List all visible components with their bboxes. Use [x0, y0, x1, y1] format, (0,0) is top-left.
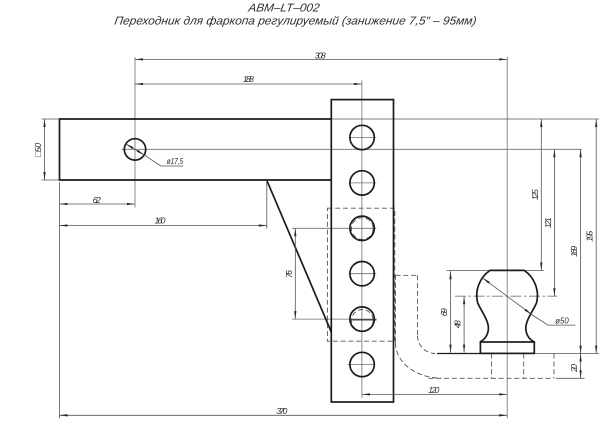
svg-text:48: 48 [453, 320, 463, 328]
svg-text:ø50: ø50 [555, 316, 569, 325]
svg-text:120: 120 [428, 385, 439, 395]
svg-text:125: 125 [530, 189, 540, 200]
svg-text:Переходник для фаркопа регулир: Переходник для фаркопа регулируемый (зан… [114, 15, 478, 27]
svg-text:АВМ–LT–002: АВМ–LT–002 [247, 2, 321, 14]
svg-text:370: 370 [276, 406, 287, 416]
svg-text:195: 195 [585, 231, 595, 242]
svg-text:□50: □50 [33, 143, 43, 157]
svg-text:308: 308 [315, 51, 326, 61]
svg-text:20: 20 [569, 364, 579, 373]
svg-text:69: 69 [439, 308, 449, 316]
svg-text:76: 76 [284, 270, 294, 278]
svg-text:62: 62 [93, 195, 101, 205]
svg-text:169: 169 [569, 246, 579, 257]
svg-text:160: 160 [155, 216, 166, 226]
svg-text:ø17,5: ø17,5 [167, 157, 184, 166]
svg-text:188: 188 [243, 74, 254, 84]
svg-text:121: 121 [543, 217, 553, 228]
